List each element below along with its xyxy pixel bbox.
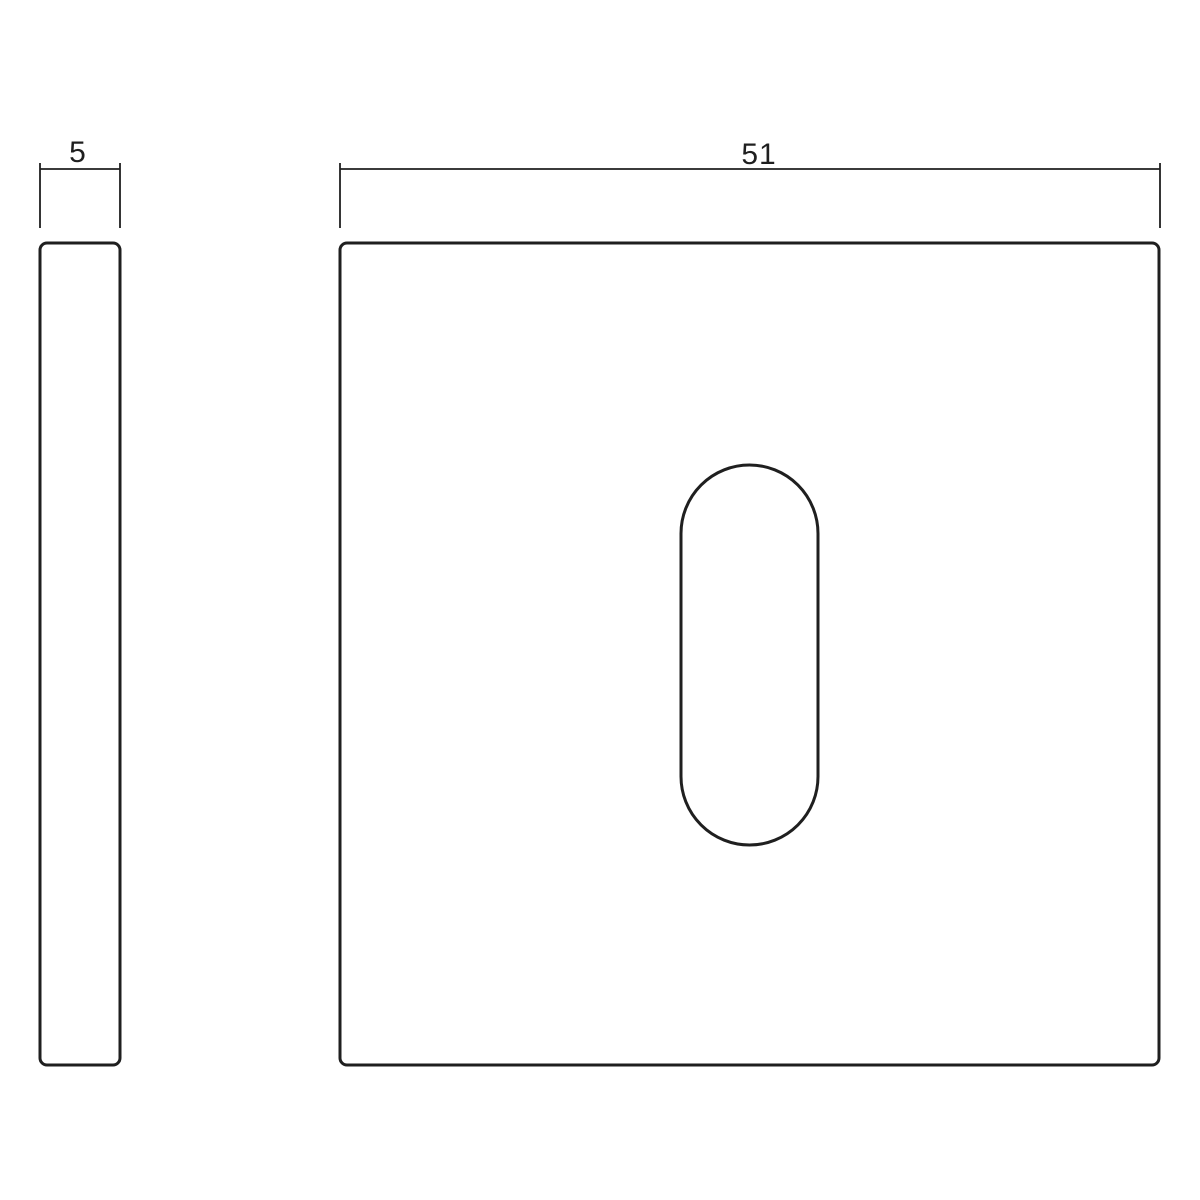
keyhole-slot <box>681 465 818 845</box>
drawing-canvas: 5 51 <box>0 0 1200 1200</box>
technical-drawing-svg: 5 51 <box>0 0 1200 1200</box>
front-view-outline <box>340 243 1159 1065</box>
side-dimension-label: 5 <box>69 136 87 169</box>
side-view-outline <box>40 243 120 1065</box>
front-view: 51 <box>340 138 1160 1065</box>
side-view: 5 <box>40 136 120 1065</box>
front-dimension-label: 51 <box>741 138 776 171</box>
